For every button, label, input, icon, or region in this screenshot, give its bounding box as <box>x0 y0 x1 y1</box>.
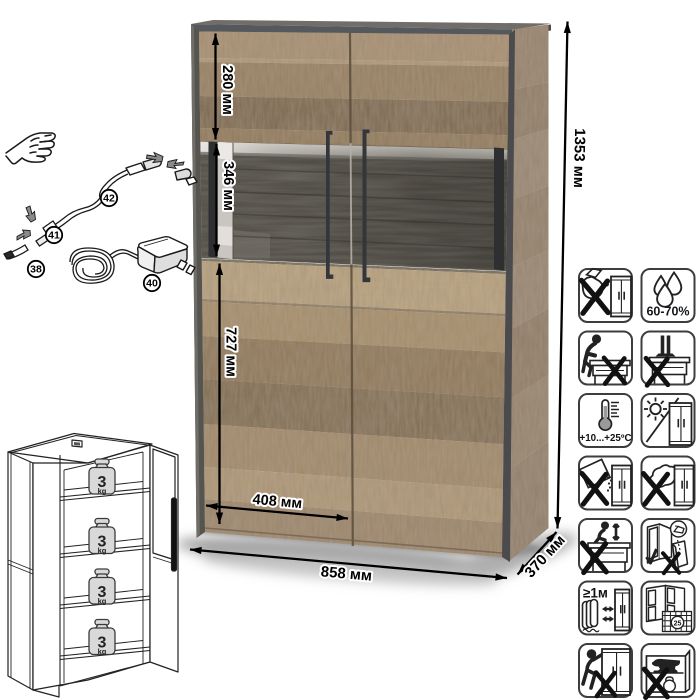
svg-text:kg: kg <box>98 487 107 496</box>
svg-text:kg: kg <box>98 546 107 555</box>
svg-text:60-70%: 60-70% <box>646 305 689 319</box>
svg-text:858 мм: 858 мм <box>320 563 373 585</box>
svg-text:41: 41 <box>48 230 60 242</box>
svg-text:280 мм: 280 мм <box>219 65 235 115</box>
svg-text:≥1м: ≥1м <box>583 586 608 601</box>
svg-text:42: 42 <box>103 193 115 205</box>
svg-text:1353 мм: 1353 мм <box>570 128 588 188</box>
svg-text:kg: kg <box>98 597 107 606</box>
svg-text:+10...+25ºC: +10...+25ºC <box>579 433 631 444</box>
svg-text:40: 40 <box>146 278 158 290</box>
svg-text:kg: kg <box>98 647 107 656</box>
svg-text:38: 38 <box>30 264 42 276</box>
svg-text:346 мм: 346 мм <box>220 161 236 211</box>
svg-text:25: 25 <box>674 621 682 628</box>
svg-text:727 мм: 727 мм <box>223 327 239 377</box>
